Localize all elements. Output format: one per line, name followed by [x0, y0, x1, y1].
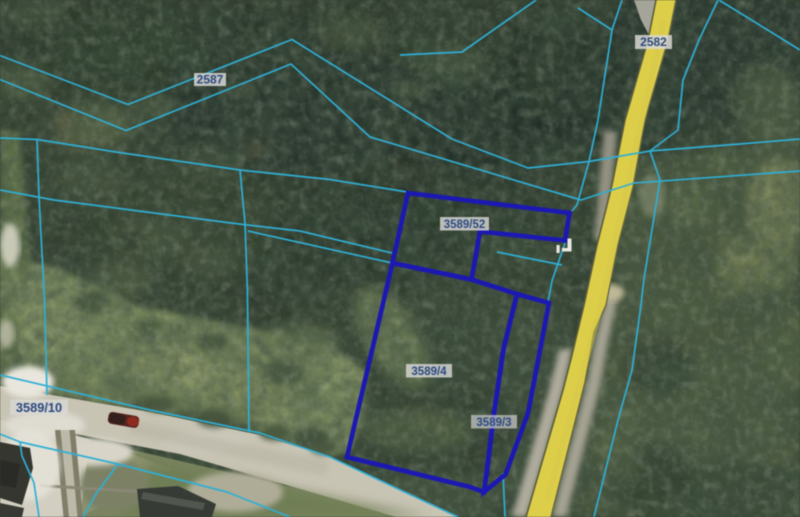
- svg-text:3589/52: 3589/52: [444, 219, 486, 231]
- svg-text:2587: 2587: [197, 73, 224, 87]
- svg-text:3589/10: 3589/10: [16, 400, 62, 415]
- svg-text:3589/4: 3589/4: [411, 366, 447, 378]
- svg-text:3589/3: 3589/3: [476, 417, 511, 429]
- svg-text:2582: 2582: [640, 35, 667, 49]
